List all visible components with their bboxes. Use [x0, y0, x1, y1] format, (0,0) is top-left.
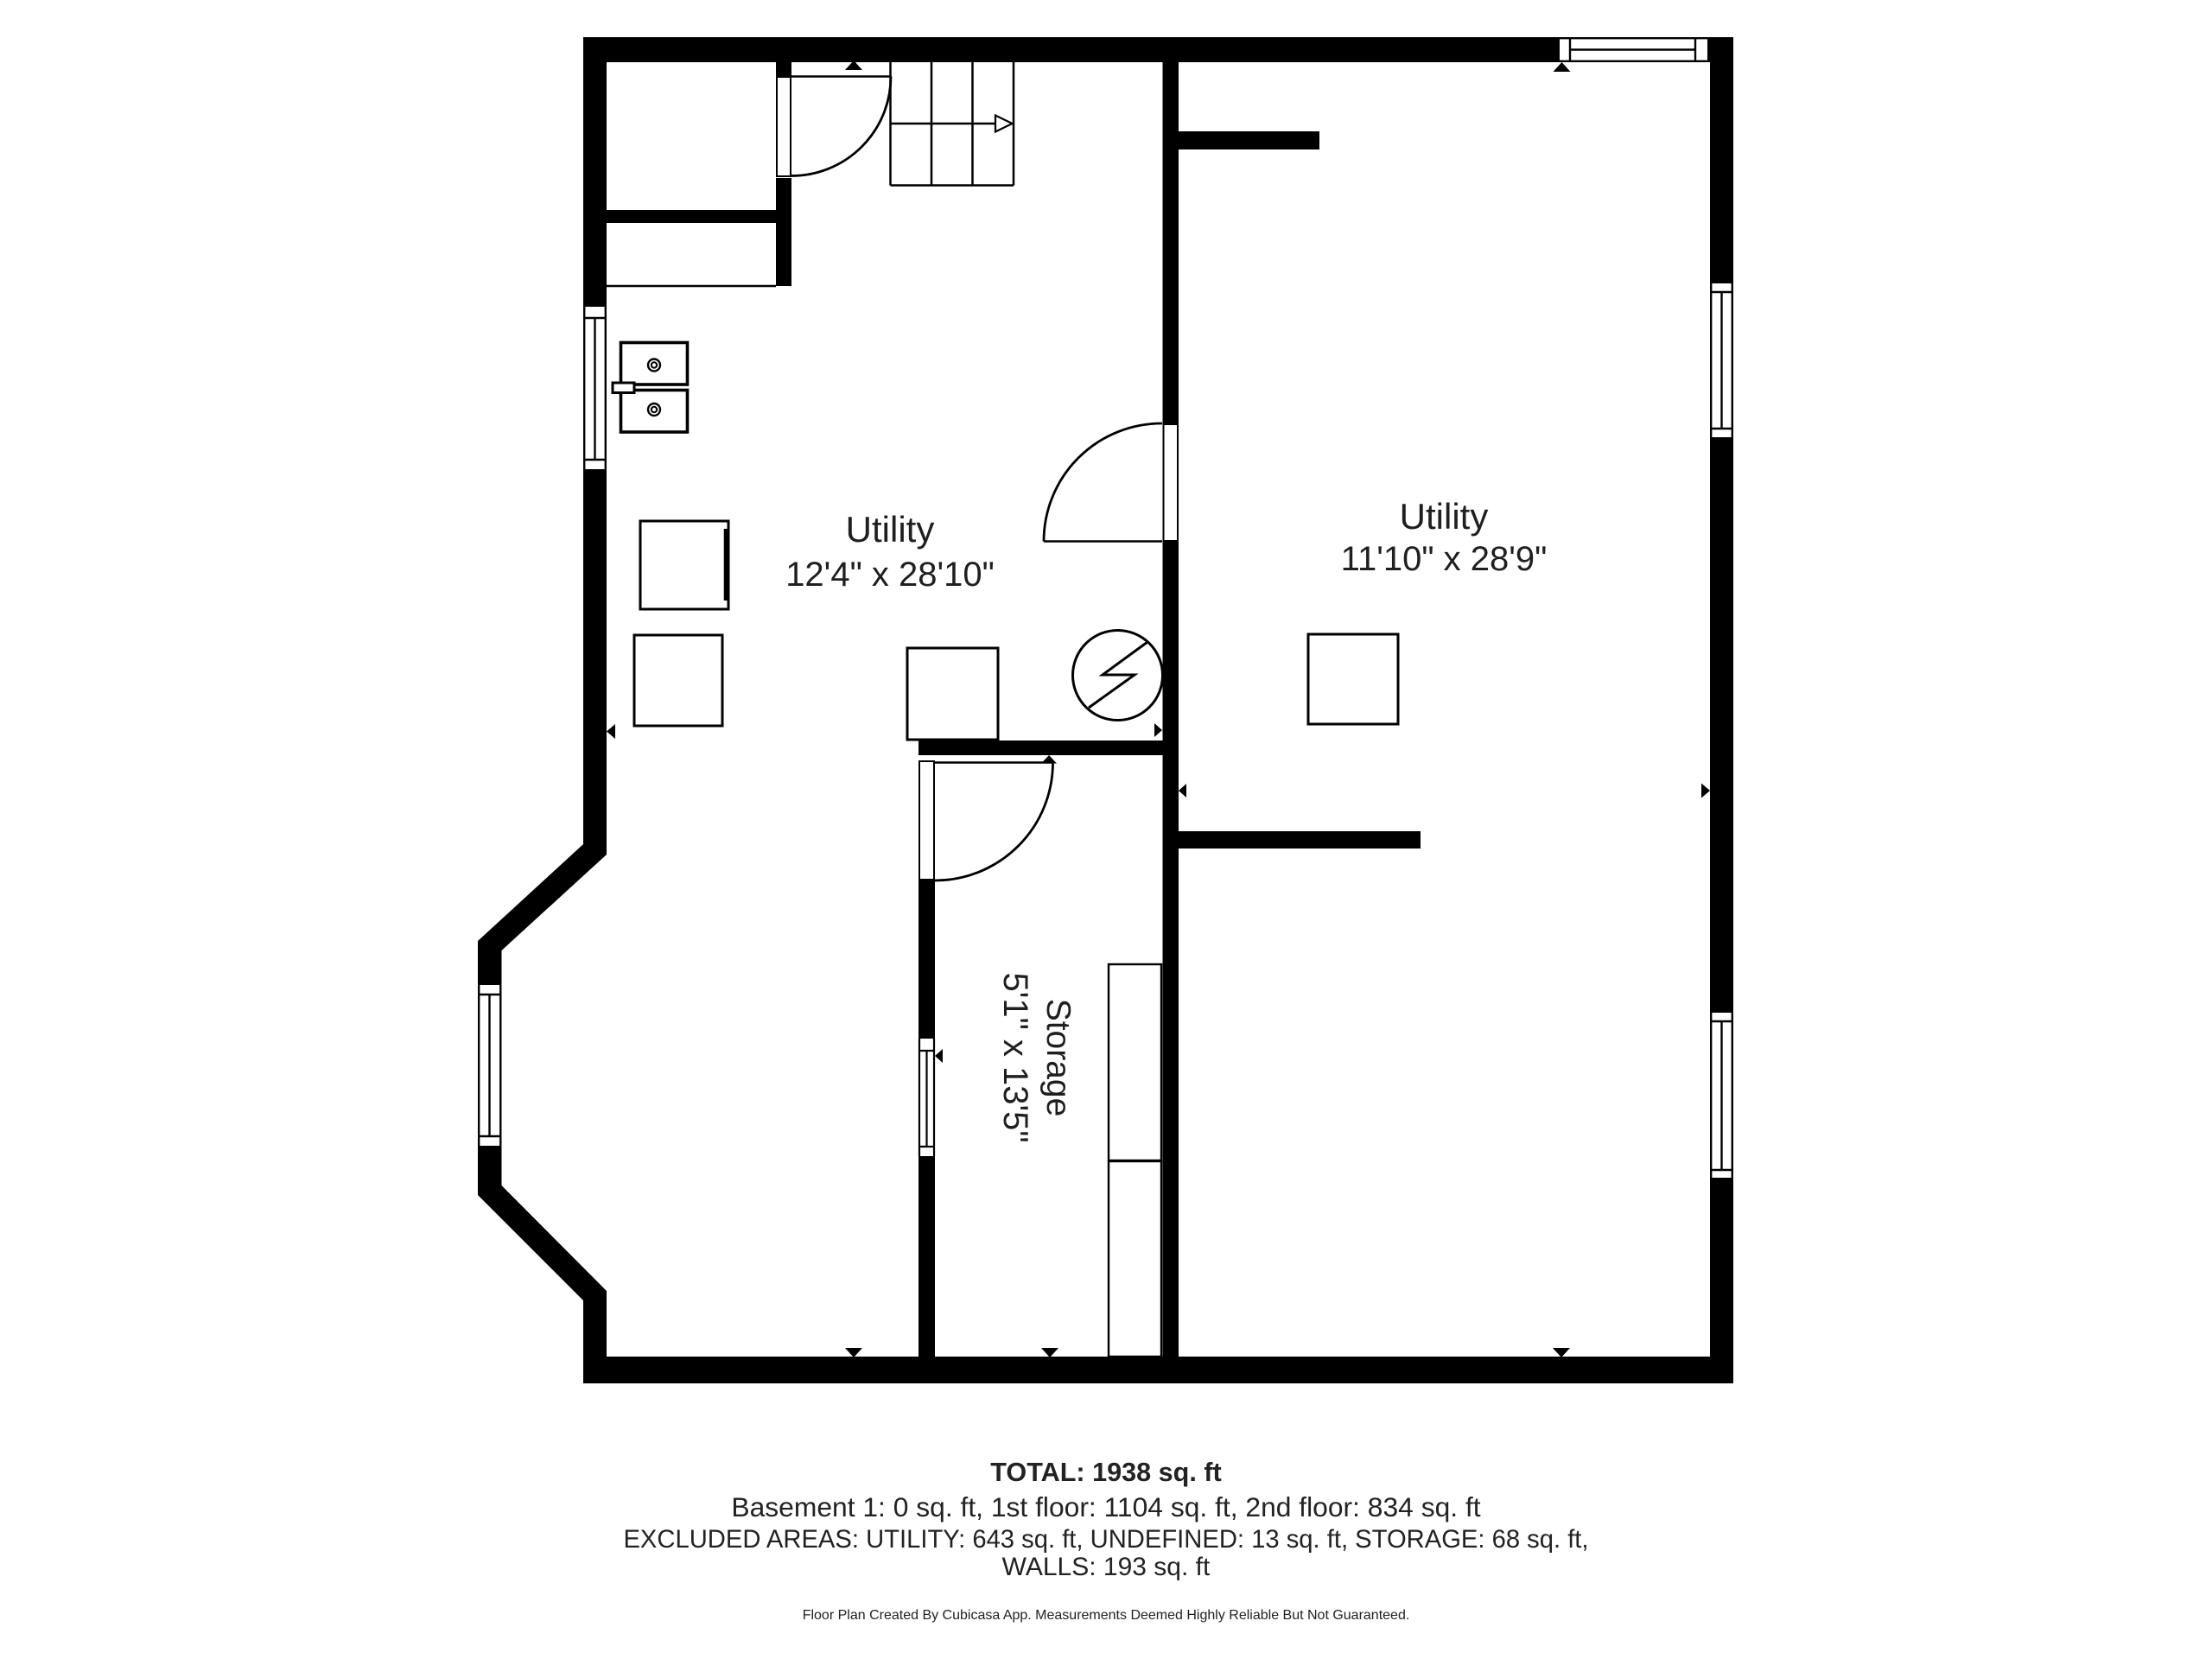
svg-text:12'4" x 28'10": 12'4" x 28'10": [785, 556, 995, 594]
svg-text:Storage: Storage: [1039, 999, 1077, 1117]
svg-text:Utility: Utility: [1400, 496, 1489, 537]
svg-text:Utility: Utility: [846, 509, 935, 550]
svg-text:WALLS: 193 sq. ft: WALLS: 193 sq. ft: [1002, 1553, 1211, 1581]
svg-text:Basement 1: 0 sq. ft, 1st floo: Basement 1: 0 sq. ft, 1st floor: 1104 sq…: [731, 1491, 1480, 1522]
svg-text:Floor Plan Created By Cubicasa: Floor Plan Created By Cubicasa App. Meas…: [803, 1608, 1410, 1623]
svg-text:11'10" x 28'9": 11'10" x 28'9": [1341, 540, 1548, 578]
svg-text:EXCLUDED AREAS: UTILITY: 643 s: EXCLUDED AREAS: UTILITY: 643 sq. ft, UND…: [623, 1526, 1588, 1554]
svg-text:5'1" x 13'5": 5'1" x 13'5": [996, 972, 1034, 1142]
svg-text:TOTAL: 1938 sq. ft: TOTAL: 1938 sq. ft: [990, 1458, 1221, 1487]
